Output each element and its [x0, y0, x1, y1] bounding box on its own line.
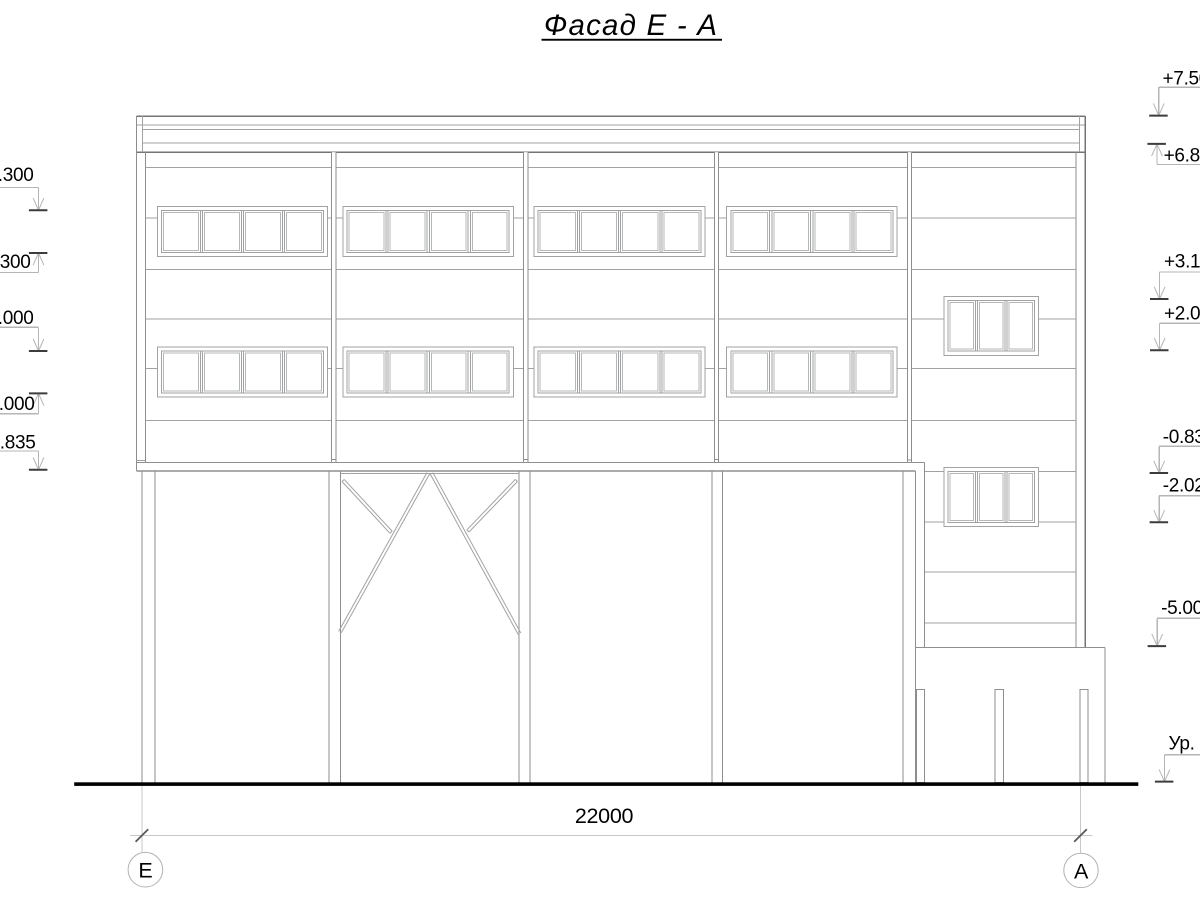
- svg-text:+2.000: +2.000: [0, 308, 34, 329]
- svg-text:22000: 22000: [575, 804, 634, 828]
- svg-text:+7.500: +7.500: [1163, 68, 1200, 89]
- svg-text:-2.020: -2.020: [1163, 476, 1200, 497]
- svg-text:+6.840: +6.840: [1164, 145, 1200, 166]
- svg-text:Ур. з.: Ур. з.: [1169, 734, 1200, 755]
- svg-text:+4.300: +4.300: [0, 252, 31, 273]
- svg-text:А: А: [1074, 859, 1089, 883]
- svg-text:Е: Е: [138, 859, 152, 883]
- svg-text:+3.190: +3.190: [1164, 251, 1200, 272]
- svg-text:+1.000: +1.000: [0, 394, 35, 415]
- svg-text:-0.835: -0.835: [0, 433, 36, 454]
- svg-text:-0.835: -0.835: [1163, 427, 1200, 448]
- svg-text:+2.000: +2.000: [1164, 303, 1200, 324]
- svg-text:-5.000: -5.000: [1161, 598, 1200, 619]
- svg-text:+5.300: +5.300: [0, 165, 34, 186]
- svg-text:Фасад Е - А: Фасад Е - А: [544, 9, 718, 42]
